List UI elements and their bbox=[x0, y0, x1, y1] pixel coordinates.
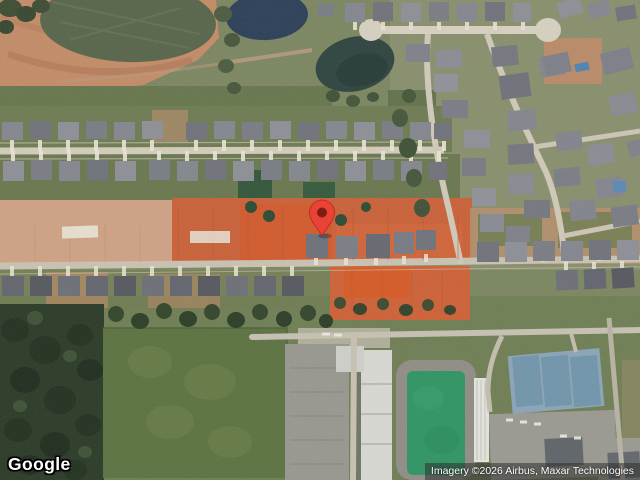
attribution-text: Imagery ©2026 Airbus, Maxar Technologies bbox=[431, 465, 634, 477]
google-logo[interactable]: Google bbox=[8, 454, 71, 475]
satellite-imagery bbox=[0, 0, 640, 480]
satellite-noise-texture bbox=[0, 0, 640, 480]
imagery-attribution: Imagery ©2026 Airbus, Maxar Technologies bbox=[425, 463, 640, 480]
pin-inner-circle bbox=[317, 208, 327, 218]
pin-shadow bbox=[318, 234, 332, 239]
map-viewport[interactable]: Google Imagery ©2026 Airbus, Maxar Techn… bbox=[0, 0, 640, 480]
